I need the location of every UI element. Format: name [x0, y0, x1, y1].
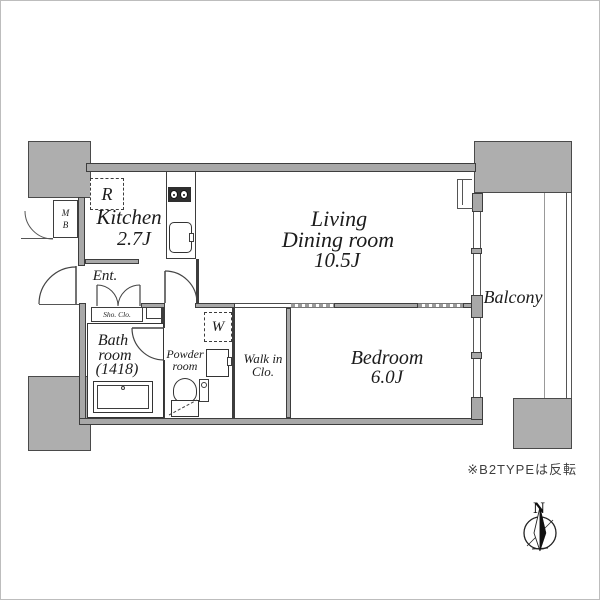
shoe-door-arc-left	[97, 285, 118, 306]
meter-box-door-arc	[25, 211, 53, 239]
note-text: ※B2TYPEは反転	[467, 459, 577, 478]
compass-north-label: N	[533, 501, 545, 517]
floorplan-canvas: Sho. Clo. W R M B	[0, 0, 600, 600]
bath-door-arc	[132, 328, 164, 360]
hall-door-arc	[165, 271, 197, 303]
entrance-label: Ent.	[93, 269, 118, 284]
toilet-dashed-mark	[169, 400, 197, 415]
entrance-door-arc	[39, 267, 76, 304]
powder-label-line2: room	[173, 360, 198, 372]
bedroom-label: Bedroom	[351, 348, 424, 368]
shoe-door-arc-right	[118, 285, 140, 306]
walkin-label-line2: Clo.	[252, 365, 274, 378]
bedroom-size: 6.0J	[371, 368, 403, 387]
living-size: 10.5J	[314, 250, 360, 271]
kitchen-label: Kitchen	[96, 207, 161, 228]
bathroom-size: (1418)	[96, 362, 139, 378]
balcony-label: Balcony	[484, 288, 543, 306]
kitchen-size: 2.7J	[117, 229, 151, 249]
